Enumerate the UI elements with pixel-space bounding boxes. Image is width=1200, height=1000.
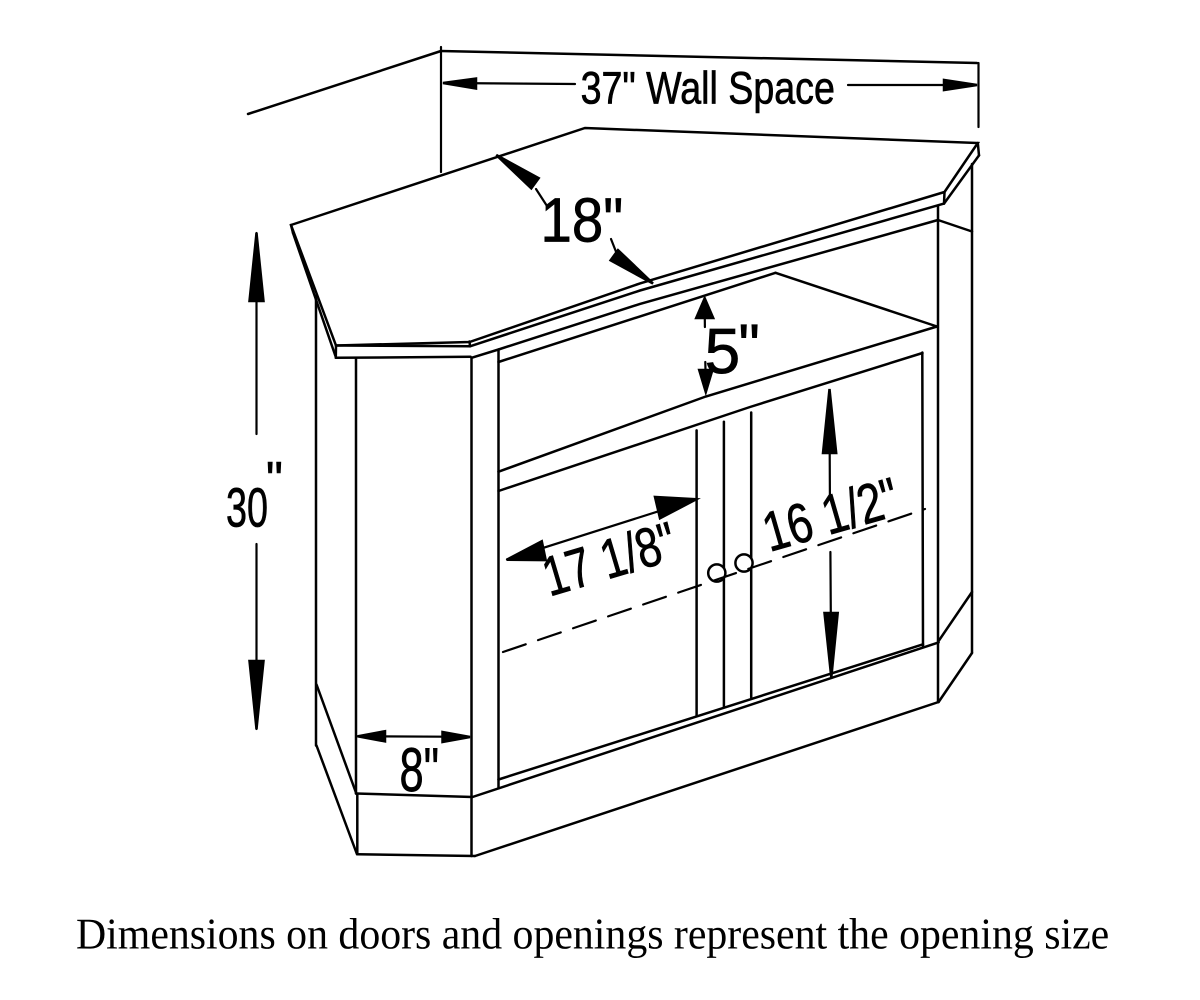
- svg-text:30: 30: [226, 477, 268, 539]
- svg-text:": ": [739, 312, 760, 379]
- svg-text:8": 8": [400, 736, 440, 805]
- svg-text:37" Wall Space: 37" Wall Space: [581, 63, 835, 114]
- svg-text:": ": [266, 452, 283, 508]
- svg-text:17 1/8": 17 1/8": [535, 509, 683, 608]
- svg-text:Dimensions on doors and openin: Dimensions on doors and openings represe…: [76, 910, 1109, 959]
- svg-text:18": 18": [541, 186, 624, 256]
- svg-text:5: 5: [705, 315, 741, 387]
